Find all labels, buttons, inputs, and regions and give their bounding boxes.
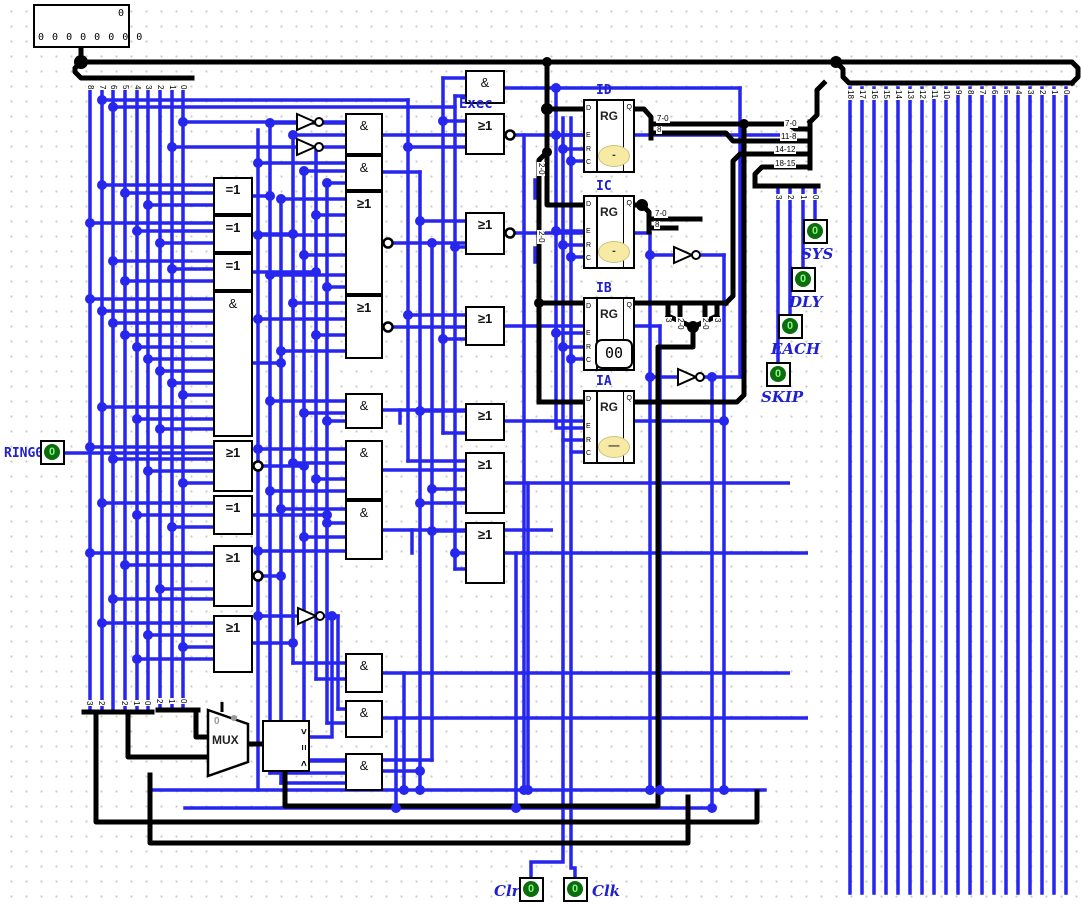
bit-label: 0: [179, 84, 187, 90]
or-gate[interactable]: ≥1: [465, 403, 505, 441]
bit-label: 3: [774, 194, 782, 200]
or-gate[interactable]: ≥1: [345, 295, 383, 359]
bit-label: 2: [156, 84, 164, 90]
bit-label: 16: [870, 89, 878, 100]
eq-symbol: =: [298, 745, 309, 751]
register-name: IA: [596, 374, 612, 389]
register-value: -: [598, 145, 630, 167]
bit-label: 2: [155, 698, 163, 704]
dly-led[interactable]: 0: [791, 267, 816, 292]
bit-label: 9: [954, 89, 962, 95]
bit-label: 3: [144, 84, 152, 90]
gt-symbol: >: [298, 729, 309, 735]
and-gate[interactable]: &: [345, 700, 383, 738]
register-ic[interactable]: RG D E R C Q -: [583, 195, 635, 269]
bus-range-label: 14-12: [774, 146, 796, 154]
bit-label: 12: [918, 89, 926, 100]
bit-label: 0: [1062, 89, 1070, 95]
comparator[interactable]: > = <: [262, 720, 310, 772]
register-name: IB: [596, 281, 612, 296]
register-ib[interactable]: RG D E R C Q 00: [583, 297, 635, 371]
xor-gate[interactable]: =1: [213, 495, 253, 535]
each-label: EACH: [771, 340, 820, 358]
bit-label: 2: [97, 700, 105, 706]
display-value: 0: [118, 8, 124, 19]
register-value: —: [598, 436, 630, 458]
or-gate[interactable]: ≥1: [465, 522, 505, 584]
bit-label: 1: [167, 698, 175, 704]
bit-label: 4: [1014, 89, 1022, 95]
each-led[interactable]: 0: [778, 314, 803, 339]
instruction-display: 0 0 0 0 0 0 0 0 0: [33, 4, 130, 48]
bit-label: 11: [930, 89, 938, 99]
register-name: ID: [596, 83, 612, 98]
bus-range-label: 2-0: [676, 317, 684, 331]
bit-label: 6: [109, 84, 117, 90]
bit-label: 1: [132, 700, 140, 706]
clk-input[interactable]: 0: [563, 877, 588, 902]
bus-range-label: 2-0: [537, 230, 545, 244]
bus-range-label: 18-15: [774, 160, 796, 168]
register-value: 00: [595, 339, 633, 369]
lt-symbol: <: [298, 761, 309, 767]
or-gate[interactable]: ≥1: [465, 306, 505, 346]
and-gate[interactable]: &: [345, 500, 383, 560]
and-gate[interactable]: &: [213, 291, 253, 437]
bit-label: 0: [179, 698, 187, 704]
bit-label: 1: [168, 84, 176, 90]
register-id[interactable]: RG D E R C Q -: [583, 99, 635, 173]
ring0-input[interactable]: 0: [40, 440, 65, 465]
register-name: IC: [596, 179, 612, 194]
bus-range-label: 11-8: [780, 133, 797, 141]
xor-gate[interactable]: =1: [213, 215, 253, 253]
or-gate[interactable]: ≥1: [213, 545, 253, 607]
or-gate[interactable]: ≥1: [345, 191, 383, 295]
or-gate[interactable]: ≥1: [465, 452, 505, 514]
xor-gate[interactable]: =1: [213, 253, 253, 291]
nor-gate[interactable]: ≥1: [465, 212, 505, 255]
register-value: -: [598, 241, 630, 263]
clr-input[interactable]: 0: [519, 877, 544, 902]
bit-label: 6: [990, 89, 998, 95]
bit-label: 1: [799, 194, 807, 200]
bit-label: 5: [1002, 89, 1010, 95]
bit-label: 18: [846, 89, 854, 100]
or-gate[interactable]: ≥1: [213, 440, 253, 492]
bus-range-label: 3: [664, 317, 672, 323]
and-gate[interactable]: &: [345, 440, 383, 500]
and-gate[interactable]: &: [345, 653, 383, 693]
or-gate[interactable]: ≥1: [213, 615, 253, 673]
bit-label: 2: [786, 194, 794, 200]
bit-label: 0: [811, 194, 819, 200]
nor-gate[interactable]: ≥1: [465, 113, 505, 155]
bit-label: 0: [143, 700, 151, 706]
dly-label: DLY: [789, 293, 822, 311]
sys-led[interactable]: 0: [803, 219, 828, 244]
skip-label: SKIP: [761, 388, 803, 406]
bit-label: 3: [1026, 89, 1034, 95]
skip-led[interactable]: 0: [766, 362, 791, 387]
bit-label: 4: [133, 84, 141, 90]
display-bits: 0 0 0 0 0 0 0 0: [38, 32, 143, 43]
clk-label: Clk: [592, 882, 620, 900]
bit-label: 15: [882, 89, 890, 100]
bus-range-label: 2-0: [701, 317, 709, 331]
bit-label: 3: [85, 700, 93, 706]
bit-label: 14: [894, 89, 902, 100]
exec-net-label: Exec: [459, 96, 493, 112]
mux-label: MUX: [212, 733, 239, 747]
bit-label: 8: [86, 84, 94, 90]
and-gate[interactable]: &: [345, 393, 383, 429]
bus-range-label: 7-0: [656, 115, 670, 123]
bit-label: 2: [1038, 89, 1046, 95]
bus-range-label: 2-0: [537, 162, 545, 176]
bit-label: 2: [120, 700, 128, 706]
circuit-canvas[interactable]: 0 0 0 0 0 0 0 0 0 =1 =1 =1 & ≥1 =1 ≥1 ≥1…: [0, 0, 1081, 907]
bus-range-label: 3: [713, 317, 721, 323]
and-gate[interactable]: &: [345, 753, 383, 791]
xor-gate[interactable]: =1: [213, 177, 253, 215]
bit-label: 5: [121, 84, 129, 90]
mux-select-value: 0: [214, 716, 220, 727]
bit-label: 7: [98, 84, 106, 90]
and-gate[interactable]: &: [345, 155, 383, 191]
bit-label: 1: [1050, 89, 1058, 95]
and-gate[interactable]: &: [345, 113, 383, 155]
ring0-label: RING0: [4, 446, 43, 461]
clr-label: Clr: [494, 882, 520, 900]
bit-label: 13: [906, 89, 914, 100]
bus-range-label: 8: [654, 221, 660, 229]
bus-range-label: 7-0: [654, 210, 668, 218]
bit-label: 17: [858, 89, 866, 100]
bit-label: 10: [942, 89, 950, 100]
bit-label: 8: [966, 89, 974, 95]
bit-label: 7: [978, 89, 986, 95]
bus-range-label: 8: [656, 126, 662, 134]
bus-range-label: 7-0: [784, 120, 798, 128]
sys-label: SYS: [801, 245, 833, 263]
register-ia[interactable]: RG D E R C Q —: [583, 390, 635, 464]
wire-layer: [0, 0, 1081, 907]
